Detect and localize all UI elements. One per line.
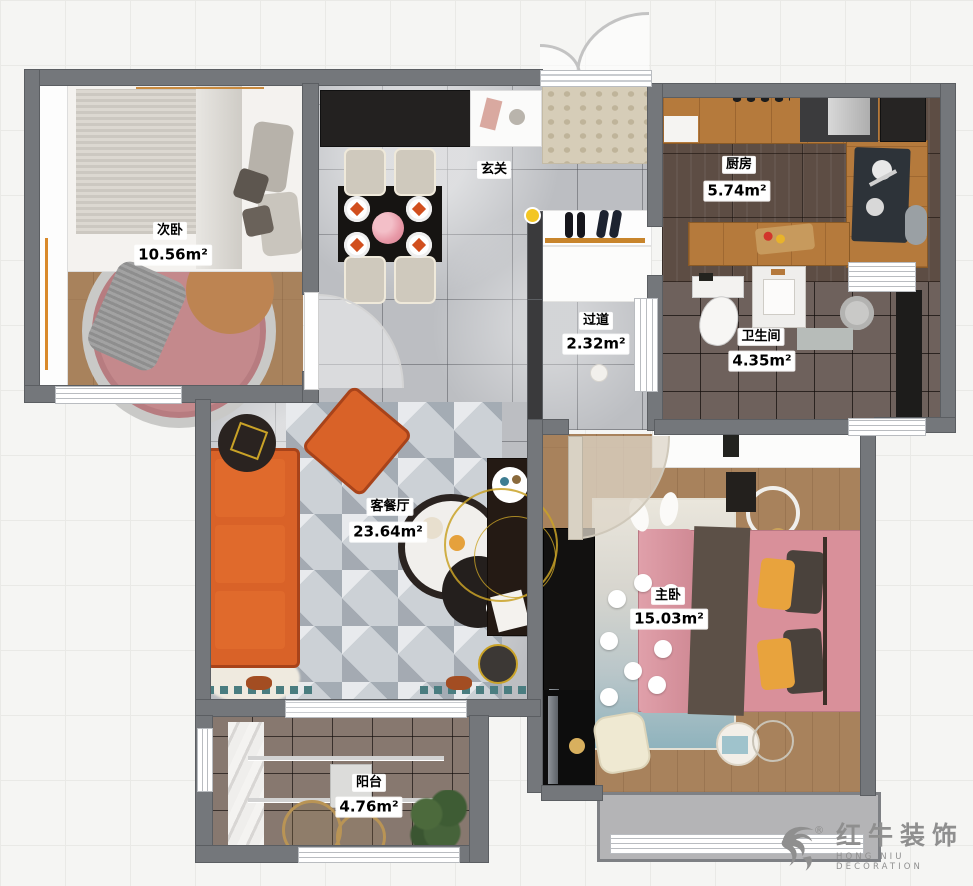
closet-strip [39, 84, 68, 386]
hongniu-bull-logo-icon: ® [778, 822, 830, 874]
sofa-orange [206, 448, 300, 668]
console-dot [500, 477, 509, 486]
wall-dining-kitchen [648, 84, 662, 226]
refrigerator [664, 116, 698, 142]
deco-plate [509, 109, 525, 125]
washing-machine-drum [840, 296, 874, 330]
garland-deco [420, 686, 528, 694]
monitor-strip [548, 696, 558, 784]
floor-stool [478, 644, 518, 684]
driftwood-deco [446, 676, 472, 690]
shower-screen [896, 290, 922, 420]
desk-black [543, 690, 595, 792]
pendant-ball [608, 590, 626, 608]
basket-cloth [722, 736, 748, 754]
desk-chair-cream [591, 710, 652, 776]
bathroom-vanity [752, 266, 806, 328]
master-door-leaf [568, 436, 583, 540]
room-label-corridor: 过道 [580, 313, 612, 329]
window-balcony-left [197, 728, 213, 792]
wall-left [25, 70, 39, 402]
room-label-second-bedroom: 次卧 [154, 223, 186, 239]
bed-blanket [76, 89, 196, 234]
vanity-sink [763, 279, 795, 315]
wall-living-left [196, 400, 210, 716]
headboard-line [136, 87, 264, 89]
room-area-second-bedroom: 10.56m² [135, 246, 211, 265]
dining-chair [344, 256, 386, 304]
drying-rack [248, 756, 444, 760]
ceiling-light-marker [590, 364, 608, 382]
toilet [692, 276, 744, 298]
room-label-living: 客餐厅 [367, 499, 412, 515]
wardrobe-cabinet-black [320, 90, 472, 147]
shoe-cabinet [530, 246, 652, 302]
room-label-entry: 玄关 [478, 162, 510, 178]
wall-master-top [655, 420, 875, 434]
room-label-kitchen: 厨房 [723, 157, 755, 173]
pendant-ball [648, 676, 666, 694]
tomato [763, 231, 773, 241]
wall-corridor-left-upper [528, 212, 542, 300]
room-area-balcony: 4.76m² [336, 798, 401, 817]
wall-corridor-left-lower [528, 300, 542, 420]
window-balcony-bottom [298, 847, 460, 863]
deco-box [480, 98, 503, 131]
viewpoint-marker [524, 207, 541, 224]
kitchen-tall-cabinet-black [880, 90, 926, 142]
sliding-door-balcony [285, 700, 467, 718]
dining-chair [394, 148, 436, 196]
side-table [218, 414, 276, 472]
dresser-item [723, 433, 739, 457]
dining-chair [394, 256, 436, 304]
kitchen-shelf-white [848, 262, 916, 292]
sofa-cushion [215, 525, 285, 583]
wall-master-right [861, 420, 875, 795]
drain-rack [905, 205, 927, 245]
bed-second-bedroom [67, 84, 307, 272]
shoes-pair [577, 212, 585, 238]
sofa-cushion [215, 591, 285, 649]
dining-chair [344, 148, 386, 196]
window-second-bedroom-south [55, 386, 182, 404]
bed-duvet-fold [196, 85, 242, 269]
pillow-yellow [756, 557, 795, 610]
range-hood [828, 97, 870, 135]
entrance-threshold [540, 70, 652, 87]
brand-subtitle: HONG NIU DECORATION [836, 852, 968, 872]
toilet-tank-item [699, 273, 713, 281]
gold-deco [230, 422, 268, 460]
room-label-balcony: 阳台 [353, 775, 385, 791]
desk-lamp [569, 738, 585, 754]
pillow-yellow [756, 637, 795, 690]
room-area-bathroom: 4.35m² [729, 352, 794, 371]
vanity-side-table [726, 472, 756, 512]
bath-mat [797, 328, 853, 350]
svg-text:®: ® [814, 824, 825, 836]
wall-master-left [528, 420, 542, 792]
bathroom-window-bottom [848, 418, 926, 436]
pendant-ball [600, 632, 618, 650]
console-dot [512, 475, 521, 484]
pendant-ball [634, 574, 652, 592]
gold-ring-deco [752, 720, 794, 762]
pendant-ball [624, 662, 642, 680]
closet-rail [45, 238, 48, 370]
room-label-master: 主卧 [652, 588, 684, 604]
bed-cushion [241, 204, 274, 237]
vanity-faucet [771, 269, 785, 275]
entry-door-mat [542, 86, 654, 164]
shoes-pair [565, 212, 573, 238]
wall-second-bedroom-right [303, 84, 318, 294]
room-area-kitchen: 5.74m² [704, 182, 769, 201]
cooktop [800, 91, 878, 142]
wall-top-kitchen [650, 84, 955, 97]
room-area-living: 23.64m² [350, 523, 426, 542]
flower-centerpiece [372, 212, 404, 244]
pendant-ball [654, 640, 672, 658]
room-label-bathroom: 卫生间 [738, 329, 783, 345]
sideboard-white [470, 90, 542, 147]
floor-plan-canvas: 次卧 10.56m² 玄关 厨房 5.74m² 过道 2.32m² 卫生间 4.… [0, 0, 973, 886]
balcony-marble-strip [228, 722, 264, 848]
brand-logo: ® 红牛装饰 HONG NIU DECORATION [778, 822, 968, 882]
gold-chandelier-ring [474, 516, 556, 598]
wall-master-bottom-stub [542, 786, 602, 800]
brand-name: 红牛装饰 [836, 822, 968, 850]
wall-top-left [25, 70, 542, 85]
driftwood-deco [246, 676, 272, 690]
room-area-corridor: 2.32m² [563, 335, 628, 354]
entrance-door-arc-large [576, 12, 649, 75]
second-bedroom-door-leaf [304, 292, 319, 390]
potted-plant [408, 790, 470, 850]
sink-bowl [866, 198, 884, 216]
shoe-shelf-trim [545, 238, 645, 243]
bathroom-door-panel [634, 298, 658, 392]
wall-balcony-right [470, 716, 488, 862]
wall-right-upper [941, 84, 955, 430]
room-area-master: 15.03m² [631, 610, 707, 629]
pendant-ball [600, 688, 618, 706]
lemon [776, 234, 786, 244]
